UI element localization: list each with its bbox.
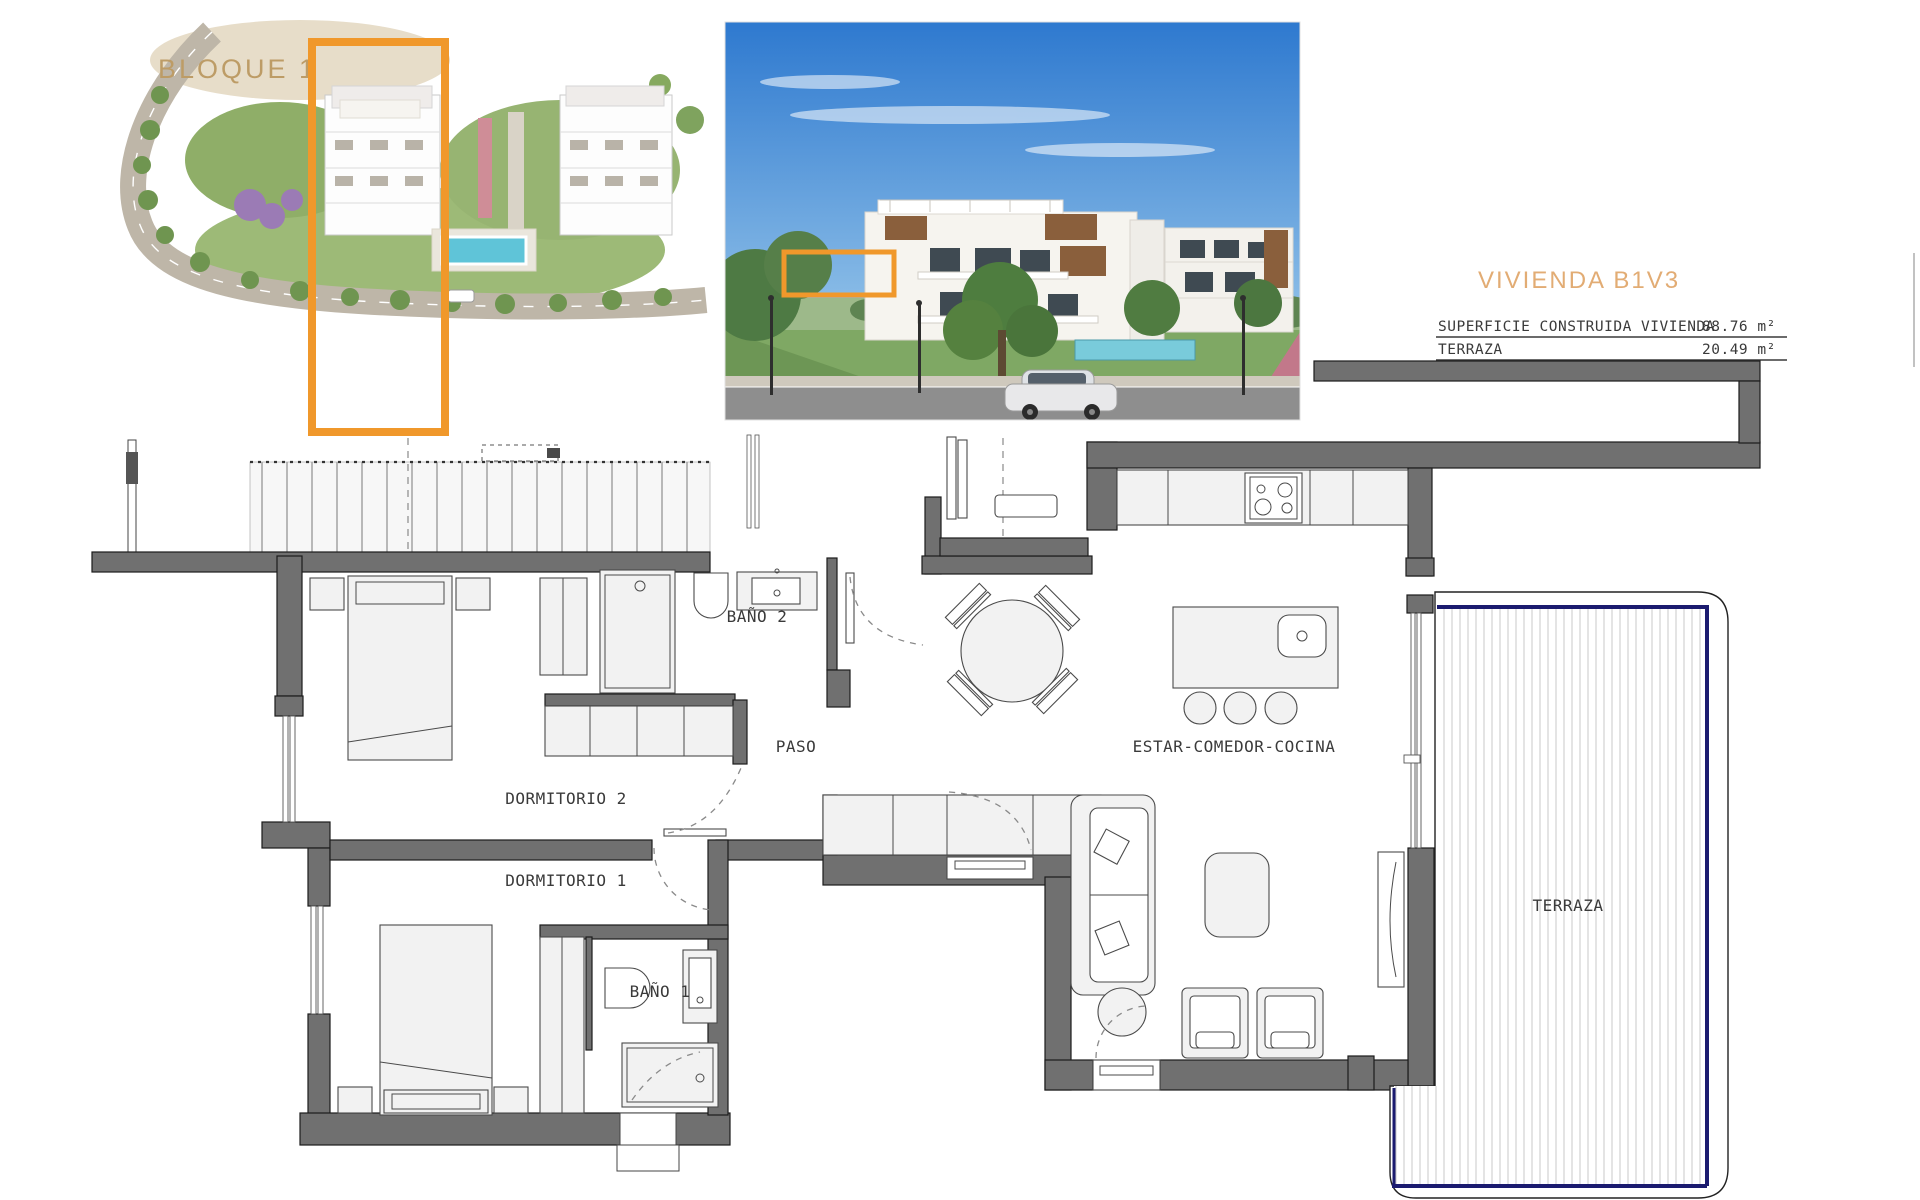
bed [380,925,492,1115]
aerial-walkway [508,112,524,242]
room-label-terraza: TERRAZA [1533,896,1604,915]
unit-panel: VIVIENDA B1V3 SUPERFICIE CONSTRUIDA VIVI… [1436,253,1914,367]
armchair [1257,988,1323,1058]
living-room [1071,795,1404,1090]
terrace-door-south [1093,1060,1160,1090]
terrace-glass-door [1404,613,1421,848]
room-label-bano2: BAÑO 2 [727,607,788,626]
stool [1184,692,1216,724]
dorm1-door [654,848,714,910]
area-row-label: TERRAZA [1438,342,1503,358]
street-pool [1075,340,1195,360]
sheet-canvas: BLOQUE 1 [0,0,1920,1200]
side-table [1098,988,1146,1036]
toilet [694,573,728,618]
closet-row [823,795,1101,855]
nightstand [310,578,344,610]
kitchen [1117,470,1408,724]
bano2 [600,569,817,693]
dorm2-door [664,768,741,836]
hob [1245,473,1302,523]
aerial-building-2 [560,86,672,235]
pergola-louvers [250,445,710,552]
floorplan-sheet: BLOQUE 1 [0,0,1920,1200]
bloque-label: BLOQUE 1 [158,54,317,84]
room-label-bano1: BAÑO 1 [630,982,691,1001]
island-sink [1278,615,1326,657]
door-threshold [947,857,1033,879]
street-render [709,22,1316,420]
coffee-table [1205,853,1269,937]
area-row-value: 20.49 m² [1702,342,1776,358]
tv-console [1378,852,1404,987]
floorplan: BAÑO 2 PASO DORMITORIO 2 DORMITORIO 1 BA… [92,361,1760,1198]
room-label-paso: PASO [776,737,817,756]
dorm1-window [311,906,323,1014]
dormitorio1 [311,906,584,1115]
aerial-render: BLOQUE 1 [133,20,706,432]
room-label-dormitorio1: DORMITORIO 1 [505,871,627,890]
stool [1265,692,1297,724]
terraza [1390,592,1728,1198]
shower [600,570,675,693]
room-label-dormitorio2: DORMITORIO 2 [505,789,627,808]
nightstand [456,578,490,610]
paso-closets [545,706,733,756]
bano1-window [617,1113,679,1171]
unit-title: VIVIENDA B1V3 [1478,267,1680,294]
dorm2-window [283,716,295,822]
dormitorio2 [283,576,587,822]
room-label-estar: ESTAR-COMEDOR-COCINA [1133,737,1336,756]
stool [1224,692,1256,724]
armchair [1182,988,1248,1058]
aerial-building-1 [325,86,440,235]
aerial-car [448,290,474,302]
closet-row [545,706,733,756]
area-row-label: SUPERFICIE CONSTRUIDA VIVIENDA [1438,319,1715,335]
entry-bench [995,495,1057,517]
left-exterior-window [126,440,138,552]
dining-set [945,583,1079,715]
aerial-red-path [478,118,492,218]
shower [622,1043,718,1107]
area-row-value: 88.76 m² [1702,319,1776,335]
sofa [1071,795,1155,995]
